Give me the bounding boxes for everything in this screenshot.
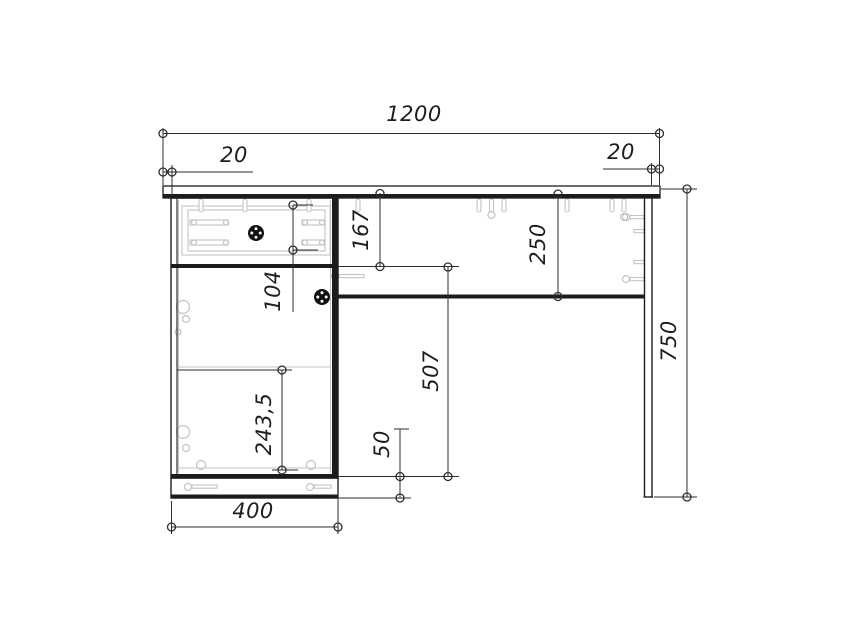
slide-pin-icon bbox=[192, 240, 197, 245]
dim-label-kneehole-height: 507 bbox=[419, 350, 443, 392]
dim-label-left-overhang: 20 bbox=[220, 143, 248, 167]
dim-label-drawer-pitch: 104 bbox=[261, 270, 285, 312]
drawing-canvas: 1200 20 20 750 167 250 bbox=[0, 0, 856, 642]
dim-label-top-section: 167 bbox=[349, 209, 373, 251]
dim-overall-height: 750 bbox=[654, 189, 697, 497]
dim-lower-section: 243,5 bbox=[177, 370, 298, 470]
structure-layer bbox=[163, 186, 660, 498]
cam-lock-hole bbox=[325, 296, 328, 299]
plinth-bottom-edge bbox=[171, 495, 338, 499]
detail-layer bbox=[175, 199, 644, 491]
screw-icon bbox=[199, 199, 203, 212]
screw-shaft-icon bbox=[630, 216, 644, 219]
screw-head-icon bbox=[307, 484, 314, 491]
screw-shaft-icon bbox=[634, 230, 644, 233]
screw-shaft-icon bbox=[339, 275, 364, 278]
drawer-slide-right-bottom bbox=[302, 240, 325, 245]
dim-top-section: 167 bbox=[349, 193, 380, 267]
cam-lock-hole bbox=[316, 296, 319, 299]
slide-pin-icon bbox=[303, 240, 308, 245]
cam-lock-hole bbox=[321, 291, 324, 294]
screw-icon bbox=[610, 199, 614, 212]
screw-shaft-icon bbox=[630, 278, 644, 281]
hinge-cup-icon bbox=[183, 316, 190, 323]
screw-head-icon bbox=[185, 484, 192, 491]
screw-icon bbox=[243, 199, 247, 212]
dim-label-apron-height: 250 bbox=[526, 223, 550, 265]
dim-right-overhang: 20 bbox=[603, 140, 660, 185]
dim-apron-height: 250 bbox=[526, 194, 558, 297]
dim-label-lower-section: 243,5 bbox=[252, 393, 276, 456]
cam-lock-hole bbox=[321, 300, 324, 303]
cam-lock-hole bbox=[250, 232, 253, 235]
dimension-layer: 1200 20 20 750 167 250 bbox=[159, 102, 697, 534]
slide-pin-icon bbox=[192, 220, 197, 225]
dim-label-pedestal-width: 400 bbox=[232, 499, 274, 523]
screw-icon bbox=[490, 199, 494, 212]
pedestal-divider-panel bbox=[171, 264, 338, 268]
apron-panel bbox=[338, 295, 644, 299]
dim-label-plinth-height: 50 bbox=[370, 430, 394, 458]
slide-pin-icon bbox=[320, 220, 325, 225]
cam-lock-drawer bbox=[248, 225, 264, 241]
screw-icon bbox=[622, 199, 626, 212]
cam-lock-hole bbox=[259, 232, 262, 235]
slide-pin-icon bbox=[303, 220, 308, 225]
cam-lock-hole bbox=[255, 227, 258, 230]
screw-icon bbox=[565, 199, 569, 212]
screw-head-icon bbox=[623, 276, 630, 283]
screw-shaft-icon bbox=[314, 485, 331, 488]
screw-icon bbox=[502, 199, 506, 212]
dim-label-right-overhang: 20 bbox=[607, 140, 635, 164]
dim-label-overall-height: 750 bbox=[657, 320, 681, 362]
screw-icon bbox=[477, 199, 481, 212]
dim-label-overall-width: 1200 bbox=[386, 102, 441, 126]
drawer-slide-right-top bbox=[302, 220, 325, 225]
cam-lock-hole bbox=[255, 236, 258, 239]
generated-details bbox=[175, 199, 644, 470]
dim-plinth-height: 50 bbox=[370, 429, 409, 498]
slide-pin-icon bbox=[320, 240, 325, 245]
hinge-cup-icon bbox=[183, 445, 190, 452]
pedestal-right-panel bbox=[332, 198, 338, 478]
cam-lock-shelf bbox=[314, 289, 330, 305]
screw-shaft-icon bbox=[634, 261, 644, 264]
assembly-drawing: 1200 20 20 750 167 250 bbox=[0, 0, 856, 642]
screw-shaft-icon bbox=[192, 485, 217, 488]
dim-drawer-pitch: 104 bbox=[261, 205, 318, 312]
